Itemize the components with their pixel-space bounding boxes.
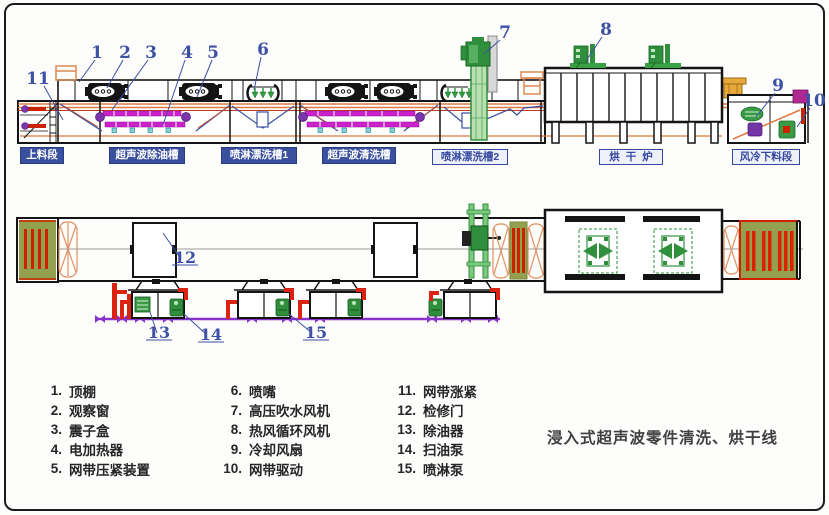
legend-item: 4.电加热器 [40,440,150,460]
callout-7: 7 [499,23,511,43]
access-door-1 [130,223,176,277]
legend-num: 13. [386,422,416,437]
spray-nozzle-icon [252,88,274,98]
section-label-oven: 烘干炉 [599,149,663,165]
legend-label: 顶棚 [69,381,96,401]
legend-num: 10. [214,461,242,476]
access-door-2 [371,223,417,277]
pump-unit-2 [226,281,294,319]
legend-item: 13.除油器 [386,420,477,440]
diagram-page: 11 1 2 3 4 5 6 7 8 9 10 [0,0,829,515]
callout-6: 6 [257,40,269,60]
section-label-cleaning-tank: 超声波清洗槽 [322,147,396,164]
plan-cooling-section [724,221,797,279]
legend-item: 7.高压吹水风机 [214,401,330,421]
belt-drive-icon [779,121,795,138]
oil-remover-icon [135,297,150,312]
legend-label: 除油器 [423,420,464,440]
legend-label: 网带压紧装置 [69,459,150,479]
section-label-unloading: 风冷下料段 [732,149,800,165]
pump-icon [429,299,442,316]
legend-num: 9. [214,442,242,457]
legend-label: 高压吹水风机 [249,400,330,420]
callout-5: 5 [207,43,219,63]
legend-label: 震子盒 [69,420,110,440]
callout-9: 9 [772,76,784,96]
callout-10: 10 [802,91,826,111]
observation-window-icon [325,83,368,100]
observation-window-icon [374,83,417,100]
diagram-title: 浸入式超声波零件清洗、烘干线 [547,426,778,448]
section-label-rinse-tank-1: 喷淋漂洗槽1 [221,147,297,164]
legend-num: 5. [40,461,62,476]
section-label-rinse-tank-2: 喷淋漂洗槽2 [432,149,508,165]
legend-label: 热风循环风机 [249,420,330,440]
hopper-icon [56,66,76,80]
callout-3: 3 [145,43,157,63]
plan-cooling-fans-mid [493,222,544,279]
section-label-loading: 上料段 [20,147,64,164]
legend-label: 冷却风扇 [249,439,303,459]
pump-unit-4 [429,281,500,318]
belt-roller [299,113,308,122]
legend-item: 11.网带涨紧 [386,381,477,401]
belt-roller [182,113,191,122]
legend-item: 12.检修门 [386,401,477,421]
pump-icon [170,299,183,316]
legend-num: 3. [40,422,62,437]
machine-diagram: 11 1 2 3 4 5 6 7 8 9 10 [0,0,829,378]
callout-12: 12 [174,248,196,267]
callout-15: 15 [305,323,327,342]
side-view: 11 1 2 3 4 5 6 7 8 9 10 [18,20,826,143]
legend-num: 6. [214,383,242,398]
callout-11: 11 [26,69,50,89]
plan-view: 12 13 14 15 [17,204,803,344]
circulation-fan-icon [570,44,606,68]
callout-2: 2 [119,43,131,63]
cooling-section [728,90,808,143]
plan-oven [545,210,722,292]
legend-num: 4. [40,442,62,457]
legend-item: 14.扫油泵 [386,440,477,460]
legend-num: 7. [214,403,242,418]
callout-1: 1 [91,43,103,63]
circulation-fan-icon [645,44,681,68]
legend-column-3: 11.网带涨紧 12.检修门 13.除油器 14.扫油泵 15.喷淋泵 [386,381,477,479]
legend-num: 2. [40,403,62,418]
belt-roller [416,113,425,122]
legend-column-2: 6.喷嘴 7.高压吹水风机 8.热风循环风机 9.冷却风扇 10.网带驱动 [214,381,330,479]
legend-num: 1. [40,383,62,398]
callout-13: 13 [148,323,170,342]
legend-label: 喷淋泵 [423,459,464,479]
plan-fan-right-icon [724,226,739,274]
legend-label: 电加热器 [69,439,123,459]
pump-unit-3 [298,281,366,319]
legend-item: 15.喷淋泵 [386,459,477,479]
legend-item: 3.震子盒 [40,420,150,440]
pump-icon [348,299,361,316]
section-label-degrease-tank: 超声波除油槽 [109,147,185,164]
legend-num: 12. [386,403,416,418]
belt-roller [96,113,105,122]
legend-label: 喷嘴 [249,381,276,401]
legend-item: 2.观察窗 [40,401,150,421]
callout-8: 8 [600,20,612,40]
legend-column-1: 1.顶棚 2.观察窗 3.震子盒 4.电加热器 5.网带压紧装置 [40,381,150,479]
oven-legs [552,122,718,143]
legend-label: 观察窗 [69,400,110,420]
cooling-fan-icon [741,107,763,121]
legend-item: 5.网带压紧装置 [40,459,150,479]
legend-item: 6.喷嘴 [214,381,330,401]
legend-label: 网带涨紧 [423,381,477,401]
plan-blower [462,204,501,278]
legend-item: 1.顶棚 [40,381,150,401]
observation-window-icon [179,83,222,100]
legend-num: 14. [386,442,416,457]
legend-item: 8.热风循环风机 [214,420,330,440]
legend-item: 9.冷却风扇 [214,440,330,460]
plan-loading-panel [17,218,58,282]
legend-num: 15. [386,461,416,476]
drying-oven [545,68,722,143]
tension-motor [748,123,762,136]
callout-14: 14 [200,325,222,344]
pump-icon [276,299,289,316]
legend-label: 扫油泵 [423,439,464,459]
legend-num: 8. [214,422,242,437]
callout-4: 4 [181,43,193,63]
legend-item: 10.网带驱动 [214,459,330,479]
legend-label: 网带驱动 [249,459,303,479]
legend-label: 检修门 [423,400,464,420]
legend-num: 11. [386,383,416,398]
